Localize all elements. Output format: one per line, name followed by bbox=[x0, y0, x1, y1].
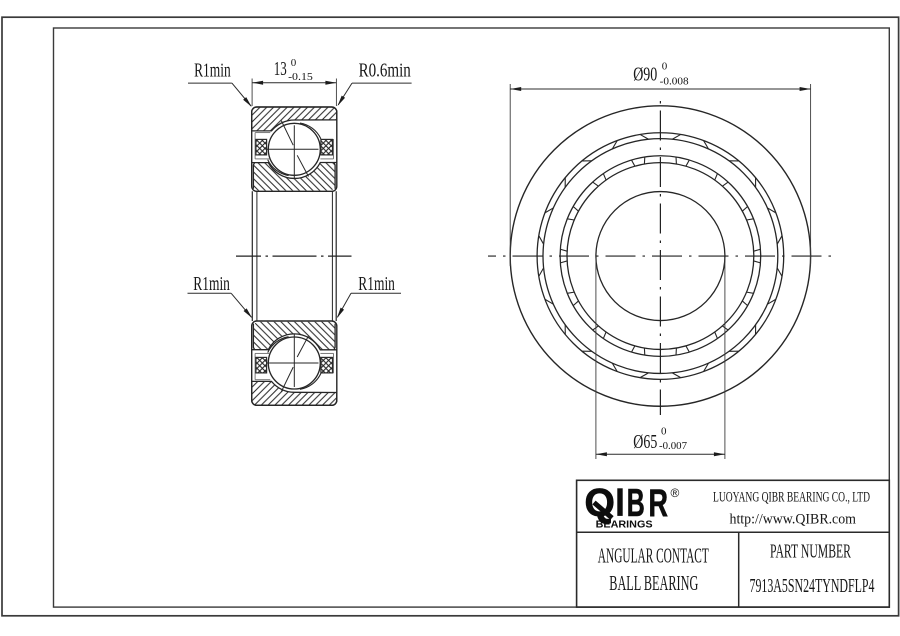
svg-text:-0.008: -0.008 bbox=[660, 76, 690, 88]
svg-text:Ø90: Ø90 bbox=[633, 63, 657, 85]
svg-text:BALL BEARING: BALL BEARING bbox=[609, 571, 698, 595]
svg-text:0: 0 bbox=[661, 426, 667, 438]
svg-text:R1min: R1min bbox=[193, 273, 230, 295]
svg-text:BEARINGS: BEARINGS bbox=[596, 520, 653, 531]
svg-text:13: 13 bbox=[274, 58, 287, 80]
svg-text:PART NUMBER: PART NUMBER bbox=[770, 541, 851, 563]
svg-text:R0.6min: R0.6min bbox=[359, 59, 411, 81]
svg-text:R: R bbox=[649, 482, 669, 525]
svg-text:0: 0 bbox=[291, 57, 297, 69]
svg-text:B: B bbox=[627, 482, 645, 525]
svg-text:ANGULAR CONTACT: ANGULAR CONTACT bbox=[598, 543, 709, 567]
svg-text:http://www.QIBR.com: http://www.QIBR.com bbox=[730, 511, 857, 527]
svg-text:-0.15: -0.15 bbox=[288, 71, 313, 83]
svg-text:®: ® bbox=[671, 486, 680, 500]
svg-text:R1min: R1min bbox=[358, 273, 395, 295]
svg-text:Ø65: Ø65 bbox=[633, 431, 657, 453]
svg-text:0: 0 bbox=[662, 60, 668, 72]
svg-text:LUOYANG QIBR BEARING CO., LTD: LUOYANG QIBR BEARING CO., LTD bbox=[713, 489, 870, 505]
svg-text:-0.007: -0.007 bbox=[659, 440, 687, 452]
svg-text:7913A5SN24TYNDFLP4: 7913A5SN24TYNDFLP4 bbox=[750, 575, 875, 597]
svg-text:R1min: R1min bbox=[194, 59, 231, 81]
